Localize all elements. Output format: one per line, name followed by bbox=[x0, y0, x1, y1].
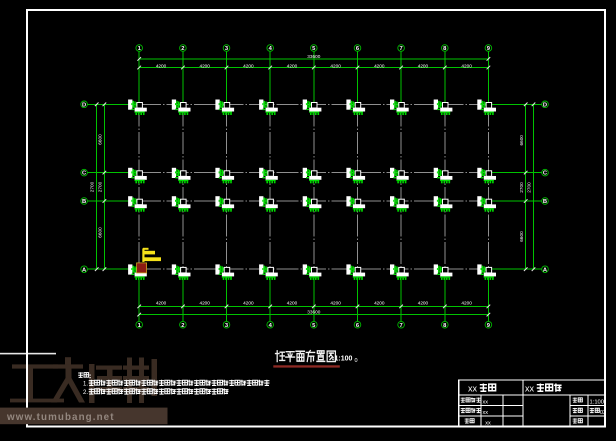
svg-text:4200: 4200 bbox=[374, 63, 385, 68]
svg-text:D: D bbox=[82, 102, 86, 108]
svg-text:4200: 4200 bbox=[243, 300, 254, 305]
svg-text:www.tumubang.net: www.tumubang.net bbox=[6, 412, 115, 423]
svg-text:4200: 4200 bbox=[243, 63, 254, 68]
svg-text:7: 7 bbox=[399, 323, 402, 329]
svg-text:0: 0 bbox=[355, 358, 358, 364]
svg-text:7: 7 bbox=[399, 46, 402, 52]
svg-text:xx: xx bbox=[485, 420, 491, 426]
svg-text:xx: xx bbox=[525, 384, 535, 394]
svg-text:1:100: 1:100 bbox=[335, 355, 353, 362]
svg-text:xx: xx bbox=[483, 410, 489, 416]
svg-text:2: 2 bbox=[181, 323, 184, 329]
svg-text:2700: 2700 bbox=[90, 181, 95, 192]
svg-text:03: 03 bbox=[600, 410, 606, 416]
svg-text:33600: 33600 bbox=[307, 54, 320, 59]
svg-text:4200: 4200 bbox=[418, 300, 429, 305]
svg-text:6600: 6600 bbox=[98, 134, 103, 145]
svg-text:xx: xx bbox=[483, 400, 489, 406]
svg-text:2700: 2700 bbox=[98, 181, 103, 192]
svg-text:4200: 4200 bbox=[374, 300, 385, 305]
svg-text:6600: 6600 bbox=[98, 227, 103, 238]
svg-text:4200: 4200 bbox=[461, 300, 472, 305]
svg-text:B: B bbox=[543, 199, 547, 205]
svg-text:4200: 4200 bbox=[330, 63, 341, 68]
svg-text:4200: 4200 bbox=[287, 300, 298, 305]
svg-text:2700: 2700 bbox=[527, 182, 532, 193]
svg-text:4200: 4200 bbox=[156, 300, 167, 305]
svg-text:xx: xx bbox=[468, 384, 478, 394]
svg-text:6600: 6600 bbox=[519, 135, 524, 146]
svg-text:2.: 2. bbox=[83, 390, 88, 396]
svg-text:B: B bbox=[82, 199, 86, 205]
svg-text:33600: 33600 bbox=[307, 310, 320, 315]
svg-text:4200: 4200 bbox=[461, 63, 472, 68]
svg-text:4200: 4200 bbox=[418, 63, 429, 68]
svg-text:1:100: 1:100 bbox=[590, 400, 605, 406]
svg-text:4200: 4200 bbox=[156, 63, 167, 68]
svg-text:D: D bbox=[543, 102, 547, 108]
svg-text:1.: 1. bbox=[83, 381, 88, 387]
svg-text:4200: 4200 bbox=[287, 63, 298, 68]
svg-text:6600: 6600 bbox=[519, 231, 524, 242]
svg-text:2700: 2700 bbox=[519, 182, 524, 193]
svg-text:4200: 4200 bbox=[199, 63, 210, 68]
svg-text:4200: 4200 bbox=[330, 300, 341, 305]
svg-text:2: 2 bbox=[181, 46, 184, 52]
svg-text:4200: 4200 bbox=[199, 300, 210, 305]
